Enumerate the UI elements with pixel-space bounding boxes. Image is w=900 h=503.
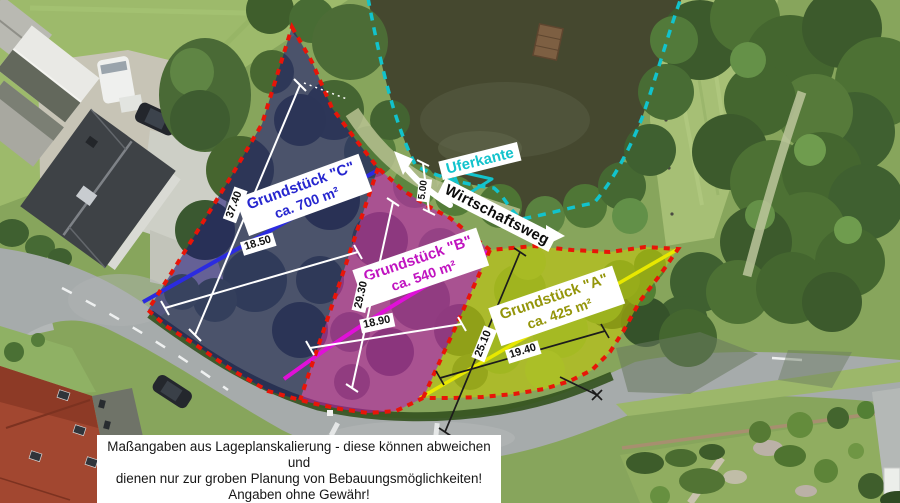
disclaimer-line-1: Maßangaben aus Lageplanskalierung - dies… — [97, 439, 501, 471]
disclaimer-line-2: dienen nur zur groben Planung von Bebauu… — [97, 471, 501, 487]
disclaimer-line-3: Angaben ohne Gewähr! — [97, 487, 501, 503]
disclaimer-box: Maßangaben aus Lageplanskalierung - dies… — [97, 435, 501, 503]
hedge-marker — [327, 410, 333, 416]
aerial-site-plan: Grundstück "C" ca. 700 m² Grundstück "B"… — [0, 0, 900, 503]
